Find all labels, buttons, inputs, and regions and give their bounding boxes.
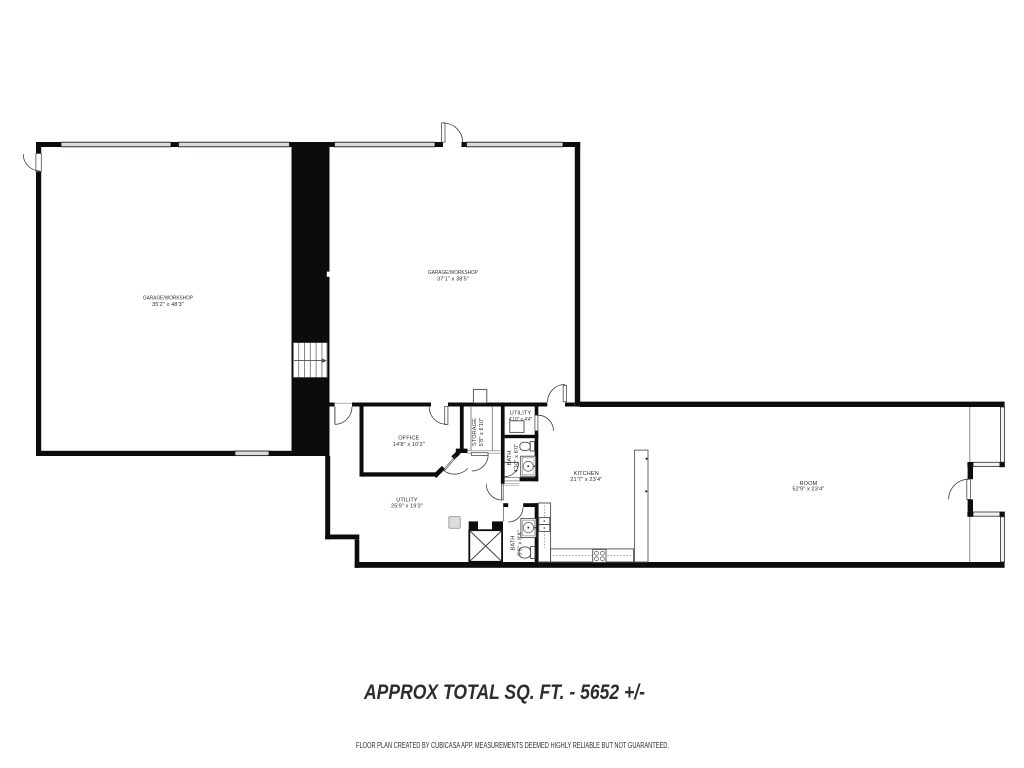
svg-text:52'9" x 23'4": 52'9" x 23'4" [792, 486, 824, 492]
svg-text:21'7" x 23'4": 21'7" x 23'4" [570, 477, 602, 483]
svg-text:STORAGE: STORAGE [472, 418, 478, 446]
svg-text:5'9" x 8'8": 5'9" x 8'8" [518, 530, 524, 556]
svg-text:5'8" x 6'10": 5'8" x 6'10" [479, 418, 485, 447]
svg-text:37'1" x 38'5": 37'1" x 38'5" [437, 277, 469, 283]
svg-text:KITCHEN: KITCHEN [574, 471, 599, 477]
svg-text:BATH: BATH [507, 451, 513, 466]
svg-text:GARAGE/WORKSHOP: GARAGE/WORKSHOP [143, 296, 193, 302]
svg-text:4'10" x 6'0": 4'10" x 6'0" [514, 444, 520, 473]
svg-text:BATH: BATH [511, 536, 517, 551]
svg-text:UTILITY: UTILITY [510, 410, 532, 416]
svg-text:UTILITY: UTILITY [396, 497, 418, 503]
svg-text:14'8" x 10'2": 14'8" x 10'2" [393, 442, 425, 448]
svg-text:35'2" x 48'3": 35'2" x 48'3" [152, 302, 184, 308]
svg-text:APPROX TOTAL SQ. FT. - 5652 +/: APPROX TOTAL SQ. FT. - 5652 +/- [363, 681, 645, 704]
svg-text:FLOOR PLAN CREATED BY CUBICASA: FLOOR PLAN CREATED BY CUBICASA APP. MEAS… [356, 741, 669, 750]
svg-text:4'10" x 4'4": 4'10" x 4'4" [509, 417, 533, 423]
svg-text:25'9" x 19'3": 25'9" x 19'3" [391, 503, 423, 509]
svg-text:GARAGE/WORKSHOP: GARAGE/WORKSHOP [428, 270, 478, 276]
svg-text:OFFICE: OFFICE [398, 436, 419, 442]
